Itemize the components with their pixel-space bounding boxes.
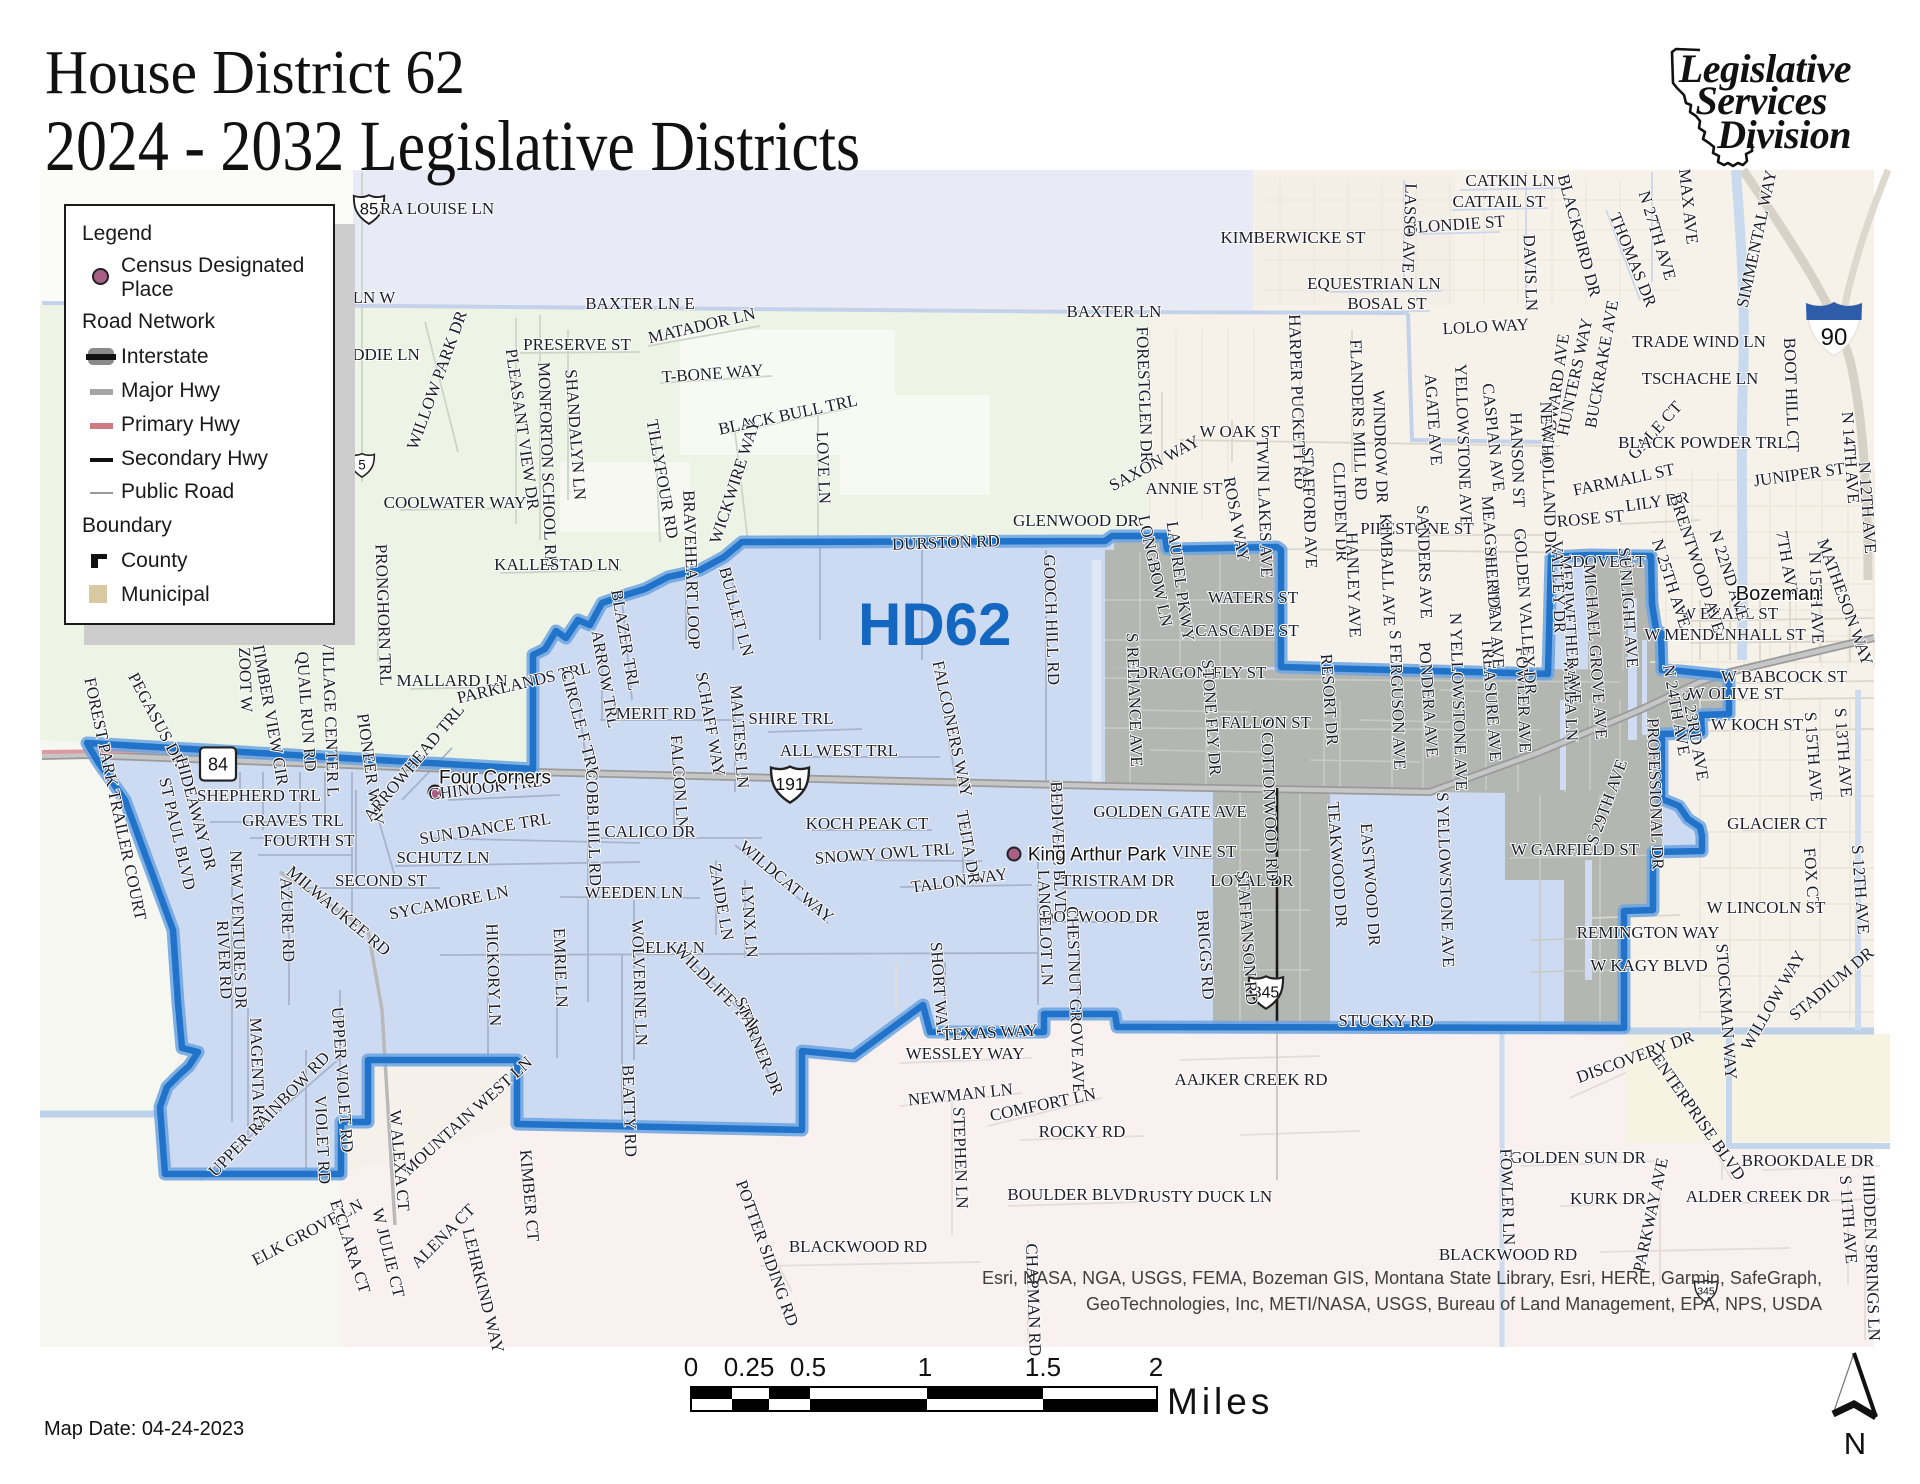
svg-text:STUCKY RD: STUCKY RD: [1338, 1011, 1433, 1030]
svg-text:GRAVES TRL: GRAVES TRL: [242, 811, 344, 830]
svg-text:TRADE WIND LN: TRADE WIND LN: [1632, 332, 1766, 351]
svg-text:ANNIE ST: ANNIE ST: [1146, 479, 1224, 498]
svg-text:RA LOUISE LN: RA LOUISE LN: [380, 199, 494, 218]
svg-text:TRISTRAM DR: TRISTRAM DR: [1061, 871, 1175, 890]
svg-text:SCHUTZ LN: SCHUTZ LN: [396, 848, 489, 867]
svg-text:WATERS ST: WATERS ST: [1208, 588, 1299, 607]
svg-text:Four Corners: Four Corners: [439, 768, 551, 789]
svg-text:ALDER CREEK DR: ALDER CREEK DR: [1686, 1187, 1831, 1206]
svg-text:DOGWOOD DR: DOGWOOD DR: [1041, 907, 1159, 926]
svg-text:FOURTH ST: FOURTH ST: [263, 831, 355, 850]
svg-text:DAVIS LN: DAVIS LN: [1520, 234, 1542, 311]
svg-text:W BEALL ST: W BEALL ST: [1680, 604, 1779, 623]
svg-text:COOLWATER WAY: COOLWATER WAY: [384, 493, 527, 512]
svg-text:VALLEY DR: VALLEY DR: [1547, 540, 1569, 634]
svg-text:BLACK POWDER TRL: BLACK POWDER TRL: [1618, 433, 1788, 452]
svg-text:84: 84: [208, 754, 228, 774]
svg-text:GLACIER CT: GLACIER CT: [1727, 814, 1827, 833]
svg-text:GOLDEN SUN DR: GOLDEN SUN DR: [1510, 1148, 1647, 1167]
svg-text:WINDROW DR: WINDROW DR: [1369, 390, 1392, 505]
svg-text:GOLDEN GATE AVE: GOLDEN GATE AVE: [1093, 802, 1247, 821]
svg-text:85: 85: [360, 200, 379, 219]
svg-text:ALL WEST TRL: ALL WEST TRL: [780, 741, 898, 760]
svg-text:SANDERS AVE: SANDERS AVE: [1413, 505, 1436, 619]
svg-text:SHEPHERD TRL: SHEPHERD TRL: [197, 786, 321, 805]
svg-text:MERIT RD: MERIT RD: [616, 704, 696, 723]
svg-text:BLACKWOOD RD: BLACKWOOD RD: [1439, 1245, 1577, 1264]
svg-text:90: 90: [1821, 324, 1848, 351]
svg-text:PRESERVE ST: PRESERVE ST: [523, 335, 631, 354]
svg-text:ROCKY RD: ROCKY RD: [1039, 1122, 1126, 1141]
svg-text:WEEDEN LN: WEEDEN LN: [585, 883, 684, 902]
svg-text:FALLON ST: FALLON ST: [1221, 713, 1311, 732]
svg-text:KOCH PEAK CT: KOCH PEAK CT: [806, 814, 929, 833]
svg-text:EMRIE LN: EMRIE LN: [550, 928, 572, 1008]
svg-text:HANSON ST: HANSON ST: [1506, 412, 1528, 508]
svg-text:LOVE LN: LOVE LN: [813, 431, 835, 504]
svg-text:HICKORY LN: HICKORY LN: [482, 923, 505, 1026]
svg-text:5: 5: [358, 458, 366, 473]
svg-text:HANLEY AVE: HANLEY AVE: [1342, 532, 1365, 638]
svg-text:BAXTER LN: BAXTER LN: [1067, 302, 1162, 321]
svg-text:BEATTY RD: BEATTY RD: [618, 1064, 640, 1157]
svg-text:CASCADE ST: CASCADE ST: [1195, 621, 1299, 640]
svg-text:CALICO DR: CALICO DR: [604, 822, 696, 841]
svg-text:King Arthur Park: King Arthur Park: [1028, 845, 1167, 866]
svg-text:BOULDER BLVD: BOULDER BLVD: [1007, 1185, 1136, 1204]
svg-text:DURSTON RD: DURSTON RD: [892, 531, 1000, 554]
svg-text:W OLIVE ST: W OLIVE ST: [1688, 684, 1784, 703]
svg-text:BOSAL ST: BOSAL ST: [1347, 294, 1427, 313]
svg-text:FOWLER LN: FOWLER LN: [1496, 1148, 1518, 1245]
svg-text:AAJKER CREEK RD: AAJKER CREEK RD: [1174, 1070, 1327, 1089]
svg-text:W LINCOLN ST: W LINCOLN ST: [1707, 898, 1826, 917]
svg-text:REMINGTON WAY: REMINGTON WAY: [1577, 923, 1720, 942]
svg-text:WESSLEY WAY: WESSLEY WAY: [906, 1044, 1025, 1063]
svg-text:KALLESTAD LN: KALLESTAD LN: [494, 555, 620, 574]
svg-text:SECOND ST: SECOND ST: [335, 871, 428, 890]
svg-text:N: N: [1844, 1426, 1866, 1461]
svg-text:191: 191: [775, 774, 804, 794]
svg-text:LASSO AVE: LASSO AVE: [1398, 183, 1420, 274]
svg-text:DDIE LN: DDIE LN: [352, 345, 420, 364]
svg-text:RUSTY DUCK LN: RUSTY DUCK LN: [1138, 1187, 1272, 1206]
svg-text:W GARFIELD ST: W GARFIELD ST: [1511, 840, 1640, 859]
svg-text:HD62: HD62: [858, 591, 1011, 658]
svg-text:TSCHACHE LN: TSCHACHE LN: [1642, 369, 1759, 388]
svg-text:AZURE RD: AZURE RD: [277, 877, 299, 962]
svg-text:KIMBERWICKE ST: KIMBERWICKE ST: [1221, 228, 1367, 247]
svg-text:W KOCH ST: W KOCH ST: [1711, 715, 1804, 734]
svg-text:Bozeman: Bozeman: [1736, 583, 1821, 605]
svg-text:BAXTER LN E: BAXTER LN E: [585, 294, 695, 313]
svg-text:STEPHEN LN: STEPHEN LN: [949, 1107, 972, 1209]
svg-text:SHIRE TRL: SHIRE TRL: [748, 709, 833, 728]
svg-text:CATKIN LN: CATKIN LN: [1465, 171, 1554, 190]
svg-text:LANCELOT LN: LANCELOT LN: [1034, 869, 1057, 986]
svg-text:KIMBALL AVE: KIMBALL AVE: [1376, 513, 1399, 626]
svg-text:COBB HILL RD: COBB HILL RD: [582, 769, 605, 886]
svg-text:CATTAIL ST: CATTAIL ST: [1453, 192, 1547, 211]
svg-text:BLACKWOOD RD: BLACKWOOD RD: [789, 1237, 927, 1256]
svg-text:EQUESTRIAN LN: EQUESTRIAN LN: [1307, 274, 1441, 293]
svg-text:GLENWOOD DR: GLENWOOD DR: [1013, 511, 1140, 530]
svg-text:KURK DR: KURK DR: [1570, 1189, 1647, 1208]
svg-text:BROOKDALE DR: BROOKDALE DR: [1742, 1151, 1875, 1170]
svg-text:LN W: LN W: [353, 288, 397, 307]
svg-text:VINE ST: VINE ST: [1172, 842, 1237, 861]
svg-text:W KAGY BLVD: W KAGY BLVD: [1590, 956, 1707, 975]
